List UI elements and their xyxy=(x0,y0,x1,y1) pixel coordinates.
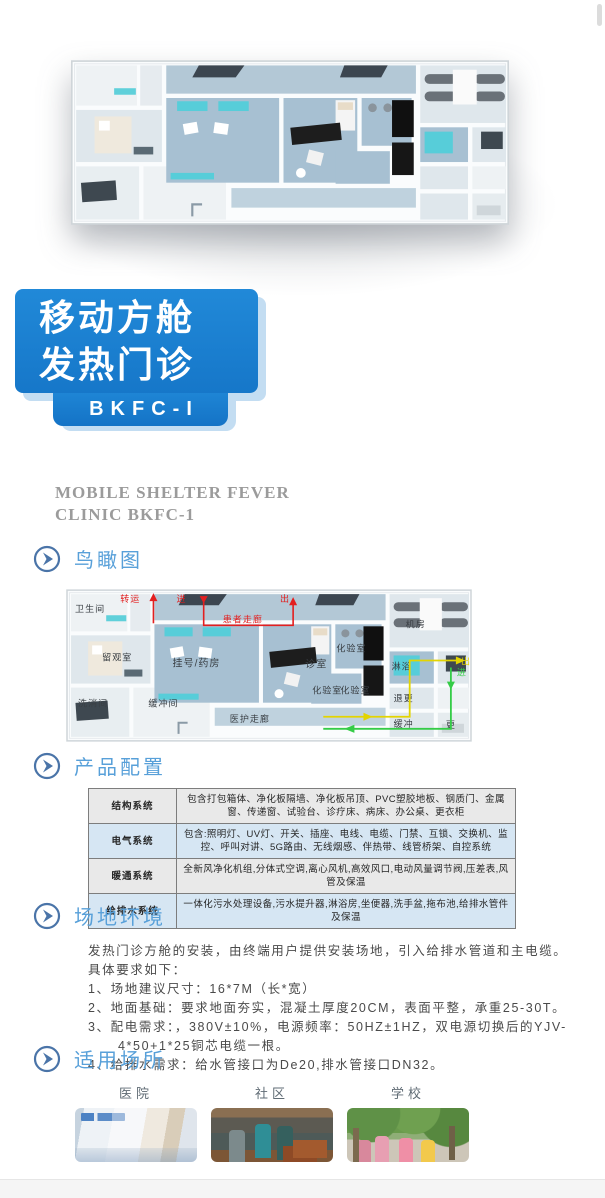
flow-label-patient-corridor: 患者走廊 xyxy=(223,613,263,624)
aerial-floorplan: 卫生间 留观室 洗消间 缓冲间 挂号/药房 诊室 化验室 化验室 化验室 机房 … xyxy=(66,589,472,742)
flow-label-enter-red: 进 xyxy=(177,594,187,604)
product-banner-tab: BKFC-I xyxy=(53,393,228,426)
config-row-label: 电气系统 xyxy=(89,824,177,859)
flow-label-exit-red: 出 xyxy=(280,593,290,604)
room-label-consult: 诊室 xyxy=(305,658,327,671)
place-label: 学校 xyxy=(347,1083,469,1102)
room-label-buffer: 缓冲 xyxy=(394,718,414,729)
place-label: 医院 xyxy=(75,1083,197,1102)
community-photo xyxy=(211,1108,333,1162)
table-row: 结构系统 包含打包箱体、净化板隔墙、净化板吊顶、PVC塑胶地板、钢质门、金属窗、… xyxy=(89,789,516,824)
room-label-observation: 留观室 xyxy=(102,651,132,662)
arrow-circle-icon xyxy=(33,1045,61,1073)
section-title-places: 适用场所 xyxy=(74,1044,166,1073)
room-label-washing: 洗消间 xyxy=(78,698,108,709)
config-row-value: 包含:照明灯、UV灯、开关、插座、电线、电缆、门禁、互锁、交换机、监控、呼叫对讲… xyxy=(177,824,516,859)
place-card-hospital: 医院 xyxy=(75,1083,197,1162)
place-card-school: 学校 xyxy=(347,1083,469,1162)
product-banner: 移动方舱 发热门诊 BKFC-I xyxy=(15,289,258,426)
flow-label-exit-yellow: 出 xyxy=(461,655,471,666)
banner-line1: 移动方舱 xyxy=(39,294,258,341)
room-label-toilet: 卫生间 xyxy=(75,603,105,614)
product-banner-main: 移动方舱 发热门诊 xyxy=(15,289,258,393)
room-label-lab-b1: 化验室 xyxy=(312,685,342,696)
room-label-machine: 机房 xyxy=(406,618,426,629)
room-label-staff-corridor: 医护走廊 xyxy=(230,713,270,724)
banner-model: BKFC-I xyxy=(82,398,199,421)
arrow-circle-icon xyxy=(33,902,61,930)
room-label-registration: 挂号/药房 xyxy=(173,657,221,670)
scrollbar-thumb[interactable] xyxy=(597,4,602,26)
room-label-shower: 淋浴 xyxy=(392,661,412,672)
english-subtitle-line1: MOBILE SHELTER FEVER xyxy=(55,482,290,504)
arrow-circle-icon xyxy=(33,752,61,780)
config-row-value: 一体化污水处理设备,污水提升器,淋浴房,坐便器,洗手盆,拖布池,给排水管件及保温 xyxy=(177,894,516,929)
english-subtitle: MOBILE SHELTER FEVER CLINIC BKFC-1 xyxy=(55,482,290,526)
arrow-circle-icon xyxy=(33,545,61,573)
place-card-community: 社区 xyxy=(211,1083,333,1162)
section-header-places: 适用场所 xyxy=(33,1044,166,1073)
place-label: 社区 xyxy=(211,1083,333,1102)
english-subtitle-line2: CLINIC BKFC-1 xyxy=(55,504,290,526)
config-row-value: 全新风净化机组,分体式空调,离心风机,高效风口,电动风量调节阀,压差表,风管及保… xyxy=(177,859,516,894)
section-title-aerial: 鸟瞰图 xyxy=(74,544,143,573)
site-item: 1、场地建议尺寸：16*7M（长*宽） xyxy=(88,980,580,999)
room-label-undress: 退更 xyxy=(394,694,414,704)
banner-line2: 发热门诊 xyxy=(39,341,258,388)
hero-render-slot xyxy=(70,60,510,224)
page: 移动方舱 发热门诊 BKFC-I MOBILE SHELTER FEVER CL… xyxy=(0,0,605,1198)
room-label-buffer-room: 缓冲间 xyxy=(148,698,178,709)
section-title-site: 场地环境 xyxy=(74,901,166,930)
flow-label-enter-green: 进 xyxy=(457,668,467,678)
config-row-label: 结构系统 xyxy=(89,789,177,824)
section-header-aerial: 鸟瞰图 xyxy=(33,544,143,573)
room-label-lab-b2: 化验室 xyxy=(340,685,370,696)
places-row: 医院 社区 学校 xyxy=(75,1083,535,1162)
flow-label-transfer: 转运 xyxy=(120,593,140,604)
table-row: 暖通系统 全新风净化机组,分体式空调,离心风机,高效风口,电动风量调节阀,压差表… xyxy=(89,859,516,894)
config-row-label: 暖通系统 xyxy=(89,859,177,894)
table-row: 电气系统 包含:照明灯、UV灯、开关、插座、电线、电缆、门禁、互锁、交换机、监控… xyxy=(89,824,516,859)
config-row-value: 包含打包箱体、净化板隔墙、净化板吊顶、PVC塑胶地板、钢质门、金属窗、传递窗、试… xyxy=(177,789,516,824)
hospital-photo xyxy=(75,1108,197,1162)
site-lead: 具体要求如下： xyxy=(88,961,580,980)
section-title-config: 产品配置 xyxy=(74,751,166,780)
school-photo xyxy=(347,1108,469,1162)
section-header-config: 产品配置 xyxy=(33,751,166,780)
aerial-floorplan-svg: 卫生间 留观室 洗消间 缓冲间 挂号/药房 诊室 化验室 化验室 化验室 机房 … xyxy=(66,589,472,742)
site-item: 2、地面基础：要求地面夯实，混凝土厚度20CM，表面平整，承重25-30T。 xyxy=(88,999,580,1018)
section-header-site: 场地环境 xyxy=(33,901,166,930)
footer-bar xyxy=(0,1179,605,1198)
site-intro: 发热门诊方舱的安装，由终端用户提供安装场地，引入给排水管道和主电缆。 xyxy=(88,942,580,961)
room-label-lab-top: 化验室 xyxy=(336,642,366,653)
